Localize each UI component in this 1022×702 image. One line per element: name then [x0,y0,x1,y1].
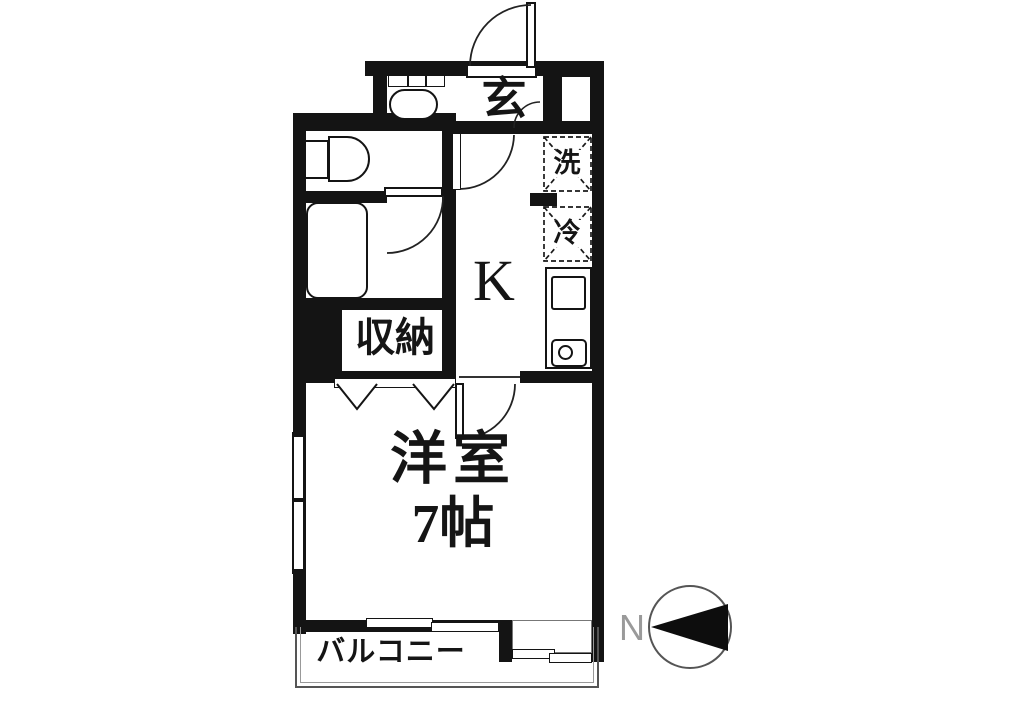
room-name-label: 洋室 [343,428,563,490]
storage-label: 収納 [334,312,456,364]
balcony-label: バルコニー [298,634,484,670]
entrance-door-arc-icon [470,5,531,66]
kitchen-label: K [458,250,530,312]
washroom-door-arc-icon [460,135,514,189]
floor-plan: 玄 洗 冷 K 収納 洋室 7帖 バルコニー N [0,0,1022,702]
bathroom-door-arc-icon [387,196,443,253]
compass-icon [649,586,731,668]
washing-machine-label: 洗 [543,136,591,191]
closet-swing-mark-icon [337,384,377,409]
north-label: N [612,606,652,650]
room-size-label: 7帖 [343,492,563,554]
closet-swing-mark-icon [413,384,454,409]
entrance-label: 玄 [476,74,532,124]
refrigerator-label: 冷 [543,206,591,261]
